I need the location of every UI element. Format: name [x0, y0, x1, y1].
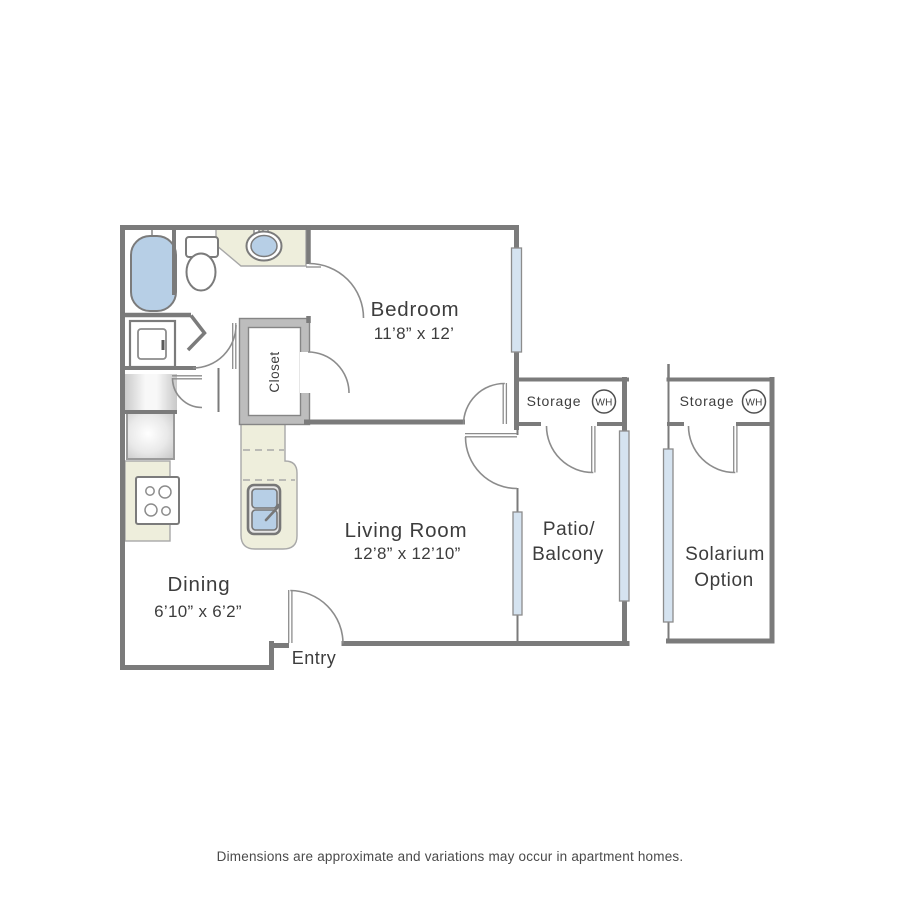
living-room-label: Living Room: [345, 519, 468, 542]
refrigerator: [127, 413, 174, 459]
entry-label: Entry: [292, 648, 337, 668]
living-room-dims: 12’8” x 12’10”: [353, 544, 460, 563]
storage2-door-swing: [688, 426, 735, 473]
living-patio-window: [513, 512, 522, 615]
pantry-shelves: [124, 374, 177, 411]
entry-door-swing: [290, 591, 343, 644]
bedroom-dims: 11’8” x 12’: [374, 324, 454, 343]
wall-angled-chevron: [188, 316, 205, 351]
bedroom-entry-door-swing: [309, 264, 364, 319]
storage1-door-swing: [546, 426, 593, 473]
bedroom-label: Bedroom: [371, 298, 460, 321]
toilet-bowl: [187, 254, 216, 291]
patio-door-swing: [466, 437, 518, 489]
closet-label: Closet: [267, 351, 282, 392]
dining-dims: 6’10” x 6’2”: [154, 602, 242, 621]
washer-dryer: [130, 321, 175, 367]
floor-plan-page: Bedroom 11’8” x 12’ Living Room 12’8” x …: [0, 0, 900, 900]
kitchen-faucet-head: [276, 504, 280, 508]
bathroom-sink-basin: [251, 236, 277, 257]
solarium-label-line1: Solarium: [685, 544, 765, 565]
burner: [162, 507, 170, 515]
closet-door-opening: [300, 352, 311, 393]
water-heater-right-label: WH: [745, 398, 762, 409]
bathtub: [131, 236, 176, 311]
burner: [145, 504, 157, 516]
solarium-window: [664, 449, 674, 622]
storage-left-label: Storage: [527, 393, 582, 409]
water-heater-left-label: WH: [595, 398, 612, 409]
patio-label-line1: Patio/: [543, 519, 595, 540]
bathroom-door-swing: [193, 325, 236, 368]
bedroom-south-door-swing: [463, 383, 504, 424]
storage-right-label: Storage: [680, 393, 735, 409]
burner: [146, 487, 154, 495]
disclaimer-text: Dimensions are approximate and variation…: [0, 849, 900, 864]
stove: [136, 477, 179, 524]
floor-plan: Bedroom 11’8” x 12’ Living Room 12’8” x …: [0, 0, 900, 900]
dining-label: Dining: [168, 573, 231, 596]
burner: [159, 486, 171, 498]
patio-right-window: [620, 431, 630, 601]
closet-door-swing: [308, 352, 349, 393]
bedroom-window: [512, 248, 522, 352]
patio-label-line2: Balcony: [532, 544, 604, 565]
kitchen-sink-basin-top: [252, 489, 277, 508]
solarium-label-line2: Option: [694, 570, 754, 591]
